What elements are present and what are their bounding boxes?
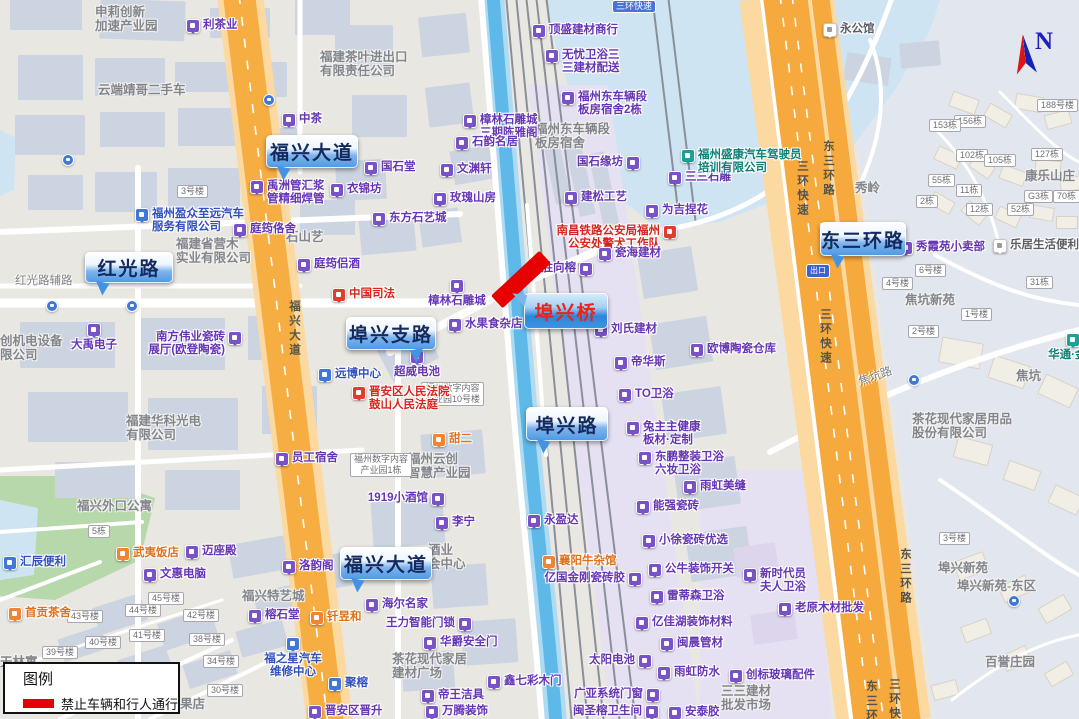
poi-marker[interactable]: 文渊轩 [440, 163, 454, 177]
label-line: 国石缘坊 [577, 156, 623, 169]
purple-poi-icon[interactable] [458, 617, 472, 631]
label-line: 安泰胶 [685, 706, 720, 719]
poi-marker[interactable]: 海尔名家 [365, 598, 379, 612]
purple-poi-icon[interactable] [657, 666, 671, 680]
label-line: 福兴特艺城 [242, 589, 305, 603]
poi-marker[interactable]: 为吉捏花 [645, 204, 659, 218]
label-line: 鼓山人民法庭 [369, 399, 450, 412]
poi-marker[interactable]: 1919小酒馆 [431, 492, 445, 506]
label-line: 李宁 [452, 516, 475, 529]
poi-marker[interactable]: 雨虹美缝 [683, 480, 697, 494]
label-line: 板材·定制 [643, 434, 701, 447]
poi-marker[interactable]: 玫瑰山房 [433, 192, 447, 206]
white-poi-icon[interactable] [823, 23, 837, 37]
poi-marker[interactable]: 万腾装饰 [425, 705, 439, 719]
bus-stop-icon[interactable] [62, 154, 74, 166]
label-line: 展厅(欧登陶瓷) [148, 344, 225, 357]
building-number-label: 44号楼 [125, 604, 161, 617]
poi-marker[interactable]: 帝华斯 [614, 356, 628, 370]
poi-label: 海尔名家 [382, 598, 428, 611]
poi-label: 兔主主健康板材·定制 [643, 421, 701, 447]
purple-poi-icon[interactable] [645, 705, 659, 719]
poi-label: 武夷饭店 [133, 547, 179, 560]
label-line: 55栋 [932, 175, 951, 186]
label-line: 甜二 [449, 433, 472, 446]
poi-marker[interactable]: 兔主主健康板材·定制 [626, 421, 640, 435]
poi-marker[interactable]: 建松工艺 [564, 191, 578, 205]
label-line: 太阳电池 [589, 654, 635, 667]
label-line: 东鹏整装卫浴 [655, 451, 724, 464]
poi-label: 首贡茶舍 [25, 607, 71, 620]
poi-marker[interactable]: 福州盛康汽车驾驶员培训有限公司 [681, 149, 695, 163]
road-callout-fuxing-avenue-north[interactable]: 福兴大道 [266, 135, 358, 168]
bus-stop-icon[interactable] [46, 300, 58, 312]
purple-poi-icon[interactable] [250, 180, 264, 194]
label-line: 11栋 [960, 185, 978, 196]
building-number-label: 3号楼 [177, 185, 208, 198]
poi-marker[interactable]: 汇辰便利 [3, 556, 17, 570]
label-line: 大禹电子 [71, 339, 117, 352]
poi-marker[interactable]: 福之星汽车维修中心 [286, 637, 300, 651]
purple-poi-icon[interactable] [778, 602, 792, 616]
label-line: 培训有限公司 [698, 162, 802, 175]
label-line: 永公馆 [840, 23, 875, 36]
poi-label: 襄阳牛杂馆 [559, 555, 617, 568]
building-number-label: 42号楼 [183, 609, 219, 622]
bus-stop-icon[interactable] [263, 94, 275, 106]
poi-marker[interactable]: 洛韵阁 [282, 560, 296, 574]
exit-badge[interactable]: 出口 [806, 264, 830, 278]
poi-label: 庭筠佫舍 [250, 223, 296, 236]
label-line: 海尔名家 [382, 598, 428, 611]
poi-marker[interactable]: 太阳电池 [638, 654, 652, 668]
poi-marker[interactable]: 亿佳湖装饰材料 [635, 616, 649, 630]
label-line: 三三建材 [721, 684, 771, 698]
poi-marker[interactable]: 华爵安全门 [423, 636, 437, 650]
poi-label: 公牛装饰开关 [665, 563, 734, 576]
label-line: 新时代员 [760, 568, 806, 581]
label-line: 建材广场 [392, 666, 467, 680]
purple-poi-icon[interactable] [660, 637, 674, 651]
building-number-label: 40号楼 [85, 636, 121, 649]
orange-poi-icon[interactable] [310, 611, 324, 625]
blue-poi-icon[interactable] [318, 368, 332, 382]
area-label: 创机电设备限公司 [0, 334, 63, 362]
area-label: 福建省营木实业有限公司 [176, 237, 251, 265]
purple-poi-icon[interactable] [186, 19, 200, 33]
road-callout-buxing-bridge[interactable]: 埠兴桥 [524, 293, 608, 329]
label-line: 焦坑 [1016, 369, 1041, 383]
label-line: 乐居生活便利店 [1010, 239, 1079, 252]
road-name-label: 东三环路 [863, 680, 879, 719]
road-callout-buxing-road[interactable]: 埠兴路 [526, 407, 608, 441]
purple-poi-icon[interactable] [143, 568, 157, 582]
poi-marker[interactable]: 王力智能门锁 [458, 617, 472, 631]
poi-marker[interactable]: 闽晨管材 [660, 637, 674, 651]
label-line: 汇辰便利 [20, 556, 66, 569]
poi-marker[interactable]: 雷蒂森卫浴 [650, 590, 664, 604]
purple-poi-icon[interactable] [598, 247, 612, 261]
label-line: 晋安区晋升 [325, 705, 383, 718]
purple-poi-icon[interactable] [642, 534, 656, 548]
purple-poi-icon[interactable] [487, 675, 501, 689]
poi-marker[interactable]: 老原木材批发 [778, 602, 792, 616]
purple-poi-icon[interactable] [423, 636, 437, 650]
poi-marker[interactable]: 迈座殿 [185, 545, 199, 559]
teal-poi-icon[interactable] [1066, 333, 1079, 347]
purple-poi-icon[interactable] [579, 262, 593, 276]
poi-marker[interactable]: 胜向榕 [579, 262, 593, 276]
poi-marker[interactable]: 能强瓷砖 [636, 500, 650, 514]
poi-marker[interactable]: 国石缘坊 [626, 156, 640, 170]
purple-poi-icon[interactable] [626, 421, 640, 435]
poi-marker[interactable]: 晋安区人民法院鼓山人民法庭 [352, 386, 366, 400]
poi-marker[interactable]: 钎昱和 [310, 611, 324, 625]
poi-marker[interactable]: 水果食杂店 [448, 318, 462, 332]
legend: 图例 禁止车辆和行人通行 [3, 662, 180, 714]
label-line: TO卫浴 [635, 388, 674, 401]
poi-marker[interactable]: 南昌铁路公安局福州公安处警犬工作队 [663, 225, 677, 239]
poi-marker[interactable]: 远博中心 [318, 368, 332, 382]
poi-marker[interactable]: 瓷海建材 [598, 247, 612, 261]
red-poi-icon[interactable] [332, 288, 346, 302]
poi-marker[interactable]: 创标玻璃配件 [729, 669, 743, 683]
poi-marker[interactable]: 永公馆 [823, 23, 837, 37]
building-number-label: 3号楼 [939, 532, 970, 545]
poi-marker[interactable]: 榕石堂 [248, 609, 262, 623]
label-line: 三建材配送 [562, 62, 620, 75]
label-line: 43号楼 [71, 611, 99, 622]
purple-poi-icon[interactable] [433, 192, 447, 206]
purple-poi-icon[interactable] [431, 492, 445, 506]
road-name-label: 东三环路 [820, 140, 836, 198]
building-number-label: 39号楼 [42, 646, 78, 659]
poi-marker[interactable]: 安泰胶 [668, 706, 682, 719]
purple-poi-icon[interactable] [743, 568, 757, 582]
poi-marker[interactable]: 欧博陶瓷仓库 [690, 343, 704, 357]
label-line: 福州盈众至远汽车 [152, 208, 244, 221]
poi-label: 晋安区晋升 [325, 705, 383, 718]
poi-marker[interactable]: 大禹电子 [87, 323, 101, 337]
area-label: 果店 [180, 697, 205, 711]
poi-label: 广亚系统门窗 [574, 688, 643, 701]
purple-poi-icon[interactable] [650, 590, 664, 604]
canal [493, 0, 556, 719]
poi-marker[interactable]: 福州盈众至远汽车服务有限公司 [135, 208, 149, 222]
purple-poi-icon[interactable] [618, 388, 632, 402]
purple-poi-icon[interactable] [372, 212, 386, 226]
poi-marker[interactable]: 三三石雕 [668, 171, 682, 185]
poi-marker[interactable]: 文惠电脑 [143, 568, 157, 582]
purple-poi-icon[interactable] [668, 171, 682, 185]
map-canvas[interactable]: N 图例 禁止车辆和行人通行 利茶业中茶禹洲管汇浆管精细焊管衣锦坊大禹电子南方伟… [0, 0, 1079, 719]
poi-label: 庭筠侣酒 [314, 258, 360, 271]
purple-poi-icon[interactable] [308, 705, 322, 719]
building-number-label: 38号楼 [189, 633, 225, 646]
purple-poi-icon[interactable] [87, 323, 101, 337]
poi-marker[interactable]: 樟林石雕城三期陈雅阁 [463, 114, 477, 128]
purple-poi-icon[interactable] [425, 705, 439, 719]
label-line: 中茶 [299, 113, 322, 126]
label-line: 东方石艺城 [389, 212, 447, 225]
orange-poi-icon[interactable] [8, 607, 22, 621]
label-line: 40号楼 [89, 637, 117, 648]
white-poi-icon[interactable] [993, 239, 1007, 253]
poi-marker[interactable]: 亿国金刚瓷砖胶 [628, 572, 642, 586]
area-label: 埠兴新苑 [938, 561, 988, 575]
purple-poi-icon[interactable] [365, 598, 379, 612]
poi-marker[interactable]: 乐居生活便利店 [993, 239, 1007, 253]
building-number-label: 11栋 [956, 184, 982, 197]
poi-marker[interactable]: 李宁 [435, 516, 449, 530]
poi-label: 老原木材批发 [795, 602, 864, 615]
poi-label: 迈座殿 [202, 545, 237, 558]
poi-marker[interactable]: 利茶业 [186, 19, 200, 33]
poi-label: 华爵安全门 [440, 636, 498, 649]
purple-poi-icon[interactable] [638, 654, 652, 668]
poi-marker[interactable]: 衣锦坊 [330, 183, 344, 197]
purple-poi-icon[interactable] [646, 688, 660, 702]
poi-marker[interactable]: 新时代员夫人卫浴 [743, 568, 757, 582]
area-label: 埠兴新苑-东区 [957, 579, 1036, 593]
poi-marker[interactable]: 闽圣榕卫生间 [645, 705, 659, 719]
poi-label: 闽晨管材 [677, 637, 723, 650]
purple-poi-icon[interactable] [421, 689, 435, 703]
poi-marker[interactable]: 樟林石雕城 [450, 279, 464, 293]
purple-poi-icon[interactable] [450, 279, 464, 293]
label-line: 亿佳湖装饰材料 [652, 616, 733, 629]
poi-label: 万腾装饰 [442, 705, 488, 718]
label-line: 钎昱和 [327, 611, 362, 624]
label-line: 埠兴新苑 [938, 561, 988, 575]
purple-poi-icon[interactable] [275, 452, 289, 466]
poi-label: 文惠电脑 [160, 568, 206, 581]
poi-marker[interactable]: TO卫浴 [618, 388, 632, 402]
purple-poi-icon[interactable] [228, 331, 242, 345]
purple-poi-icon[interactable] [297, 258, 311, 272]
purple-poi-icon[interactable] [527, 514, 541, 528]
poi-marker[interactable]: 小徐瓷砖优选 [642, 534, 656, 548]
label-line: 聚榕 [345, 677, 368, 690]
poi-label: 国石堂 [381, 161, 416, 174]
poi-label: 衣锦坊 [347, 183, 382, 196]
poi-label: 东鹏整装卫浴六妆卫浴 [655, 451, 724, 477]
poi-marker[interactable]: 武夷饭店 [116, 547, 130, 561]
building-number-label: 12栋 [966, 203, 993, 216]
poi-marker[interactable]: 首贡茶舍 [8, 607, 22, 621]
label-line: 福州盛康汽车驾驶员 [698, 149, 802, 162]
road-name-label: 三环快速 [886, 678, 902, 719]
purple-poi-icon[interactable] [635, 616, 649, 630]
purple-poi-icon[interactable] [638, 451, 652, 465]
area-label: 秀岭 [855, 181, 880, 195]
bus-stop-icon[interactable] [126, 300, 138, 312]
poi-marker[interactable]: 禹洲管汇浆管精细焊管 [250, 180, 264, 194]
orange-poi-icon[interactable] [432, 433, 446, 447]
label-line: 顶盛建材商行 [549, 24, 618, 37]
label-line: 188号楼 [1041, 100, 1074, 111]
purple-poi-icon[interactable] [532, 24, 546, 38]
label-line: 批发市场 [721, 698, 771, 712]
purple-poi-icon[interactable] [463, 114, 477, 128]
poi-marker[interactable]: 庭筠侣酒 [297, 258, 311, 272]
purple-poi-icon[interactable] [683, 480, 697, 494]
poi-marker[interactable]: 东鹏整装卫浴六妆卫浴 [638, 451, 652, 465]
purple-poi-icon[interactable] [636, 500, 650, 514]
label-line: 5栋 [92, 526, 106, 537]
poi-marker[interactable]: 永盈达 [527, 514, 541, 528]
poi-label: 福州盈众至远汽车服务有限公司 [152, 208, 244, 234]
poi-marker[interactable]: 石韵名居 [455, 136, 469, 150]
orange-poi-icon[interactable] [542, 555, 556, 569]
road-layer [0, 0, 1079, 719]
poi-marker[interactable]: 中茶 [282, 113, 296, 127]
building-number-label: 34号楼 [203, 655, 239, 668]
label-line: 禹洲管汇浆 [267, 180, 325, 193]
purple-poi-icon[interactable] [729, 669, 743, 683]
red-poi-icon[interactable] [663, 225, 677, 239]
callout-label: 埠兴路 [535, 411, 598, 438]
label-line: 武夷饭店 [133, 547, 179, 560]
poi-marker[interactable]: 聚榕 [328, 677, 342, 691]
poi-label: 顶盛建材商行 [549, 24, 618, 37]
label-line: 华通·金豪 [1048, 349, 1079, 362]
label-line: 华爵安全门 [440, 636, 498, 649]
label-line: 福州云创 [408, 452, 471, 466]
purple-poi-icon[interactable] [448, 318, 462, 332]
area-label: 福建茶叶进出口有限责任公司 [320, 50, 408, 78]
label-line: 智慧产业园 [408, 466, 471, 480]
purple-poi-icon[interactable] [628, 572, 642, 586]
purple-poi-icon[interactable] [626, 156, 640, 170]
label-line: 31栋 [1030, 277, 1049, 288]
label-line: 1919小酒馆 [368, 492, 428, 505]
callout-label: 红光路 [97, 254, 160, 281]
purple-poi-icon[interactable] [690, 343, 704, 357]
poi-marker[interactable]: 国石堂 [364, 161, 378, 175]
label-line: 6号楼 [919, 265, 942, 276]
purple-poi-icon[interactable] [645, 204, 659, 218]
poi-marker[interactable]: 员工宿舍 [275, 452, 289, 466]
purple-poi-icon[interactable] [282, 560, 296, 574]
purple-poi-icon[interactable] [455, 136, 469, 150]
poi-marker[interactable]: 华通·金豪 [1066, 333, 1079, 347]
poi-marker[interactable]: 广亚系统门窗 [646, 688, 660, 702]
blue-poi-icon[interactable] [328, 677, 342, 691]
road-callout-buxing-branch-road[interactable]: 埠兴支路 [346, 317, 436, 350]
orange-poi-icon[interactable] [116, 547, 130, 561]
poi-label: 榕石堂 [265, 609, 300, 622]
blue-poi-icon[interactable] [135, 208, 149, 222]
poi-label: 超威电池 [394, 366, 440, 379]
area-label: 茶花现代家居建材广场 [392, 652, 467, 680]
label-line: 福建华科光电 [126, 414, 201, 428]
area-label: 福州东车辆段板房宿舍 [535, 122, 610, 150]
label-line: 39号楼 [46, 647, 74, 658]
bus-stop-icon[interactable] [1008, 595, 1020, 607]
poi-marker[interactable]: 无忧卫浴三三建材配送 [545, 49, 559, 63]
purple-poi-icon[interactable] [330, 183, 344, 197]
purple-poi-icon[interactable] [282, 113, 296, 127]
building-number-label: 福州数字内容产业园1栋 [350, 453, 412, 477]
label-line: 庭筠佫舍 [250, 223, 296, 236]
poi-label: 禹洲管汇浆管精细焊管 [267, 180, 325, 206]
poi-label: 文渊轩 [457, 163, 492, 176]
purple-poi-icon[interactable] [561, 91, 575, 105]
poi-marker[interactable]: 东方石艺城 [372, 212, 386, 226]
poi-marker[interactable]: 晋安区晋升 [308, 705, 322, 719]
red-poi-icon[interactable] [352, 386, 366, 400]
purple-poi-icon[interactable] [648, 563, 662, 577]
label-line: 为吉捏花 [662, 204, 708, 217]
blue-poi-icon[interactable] [3, 556, 17, 570]
poi-label: 乐居生活便利店 [1010, 239, 1079, 252]
purple-poi-icon[interactable] [248, 609, 262, 623]
purple-poi-icon[interactable] [614, 356, 628, 370]
poi-label: 中茶 [299, 113, 322, 126]
label-line: 玫瑰山房 [450, 192, 496, 205]
poi-marker[interactable]: 南方伟业瓷砖展厅(欧登陶瓷) [228, 331, 242, 345]
area-label: 焦坑 [1016, 369, 1041, 383]
label-line: 茶花现代家居 [392, 652, 467, 666]
poi-marker[interactable]: 甜二 [432, 433, 446, 447]
bus-stop-icon[interactable] [908, 374, 920, 386]
poi-marker[interactable]: 福州东车辆段板房宿舍2栋 [561, 91, 575, 105]
poi-marker[interactable]: 中国司法 [332, 288, 346, 302]
blue-poi-icon[interactable] [286, 637, 300, 651]
poi-label: 甜二 [449, 433, 472, 446]
purple-poi-icon[interactable] [545, 49, 559, 63]
poi-label: 东方石艺城 [389, 212, 447, 225]
purple-poi-icon[interactable] [435, 516, 449, 530]
building-number-label: 70栋 [1053, 190, 1079, 203]
label-line: 果店 [180, 697, 205, 711]
label-line: 员工宿舍 [292, 452, 338, 465]
poi-marker[interactable]: 雨虹防水 [657, 666, 671, 680]
poi-label: 李宁 [452, 516, 475, 529]
poi-marker[interactable]: 帝王洁具 [421, 689, 435, 703]
purple-poi-icon[interactable] [564, 191, 578, 205]
teal-poi-icon[interactable] [681, 149, 695, 163]
purple-poi-icon[interactable] [440, 163, 454, 177]
purple-poi-icon[interactable] [185, 545, 199, 559]
label-line: 能强瓷砖 [653, 500, 699, 513]
road-callout-hongguang-road[interactable]: 红光路 [85, 252, 173, 283]
road-callout-east-third-ring-road[interactable]: 东三环路 [820, 222, 906, 256]
road-callout-fuxing-avenue-south[interactable]: 福兴大道 [340, 547, 432, 580]
poi-marker[interactable]: 襄阳牛杂馆 [542, 555, 556, 569]
building-number-label: 52栋 [1007, 203, 1034, 216]
label-line: 兔主主健康 [643, 421, 701, 434]
label-line: 1号楼 [965, 309, 988, 320]
label-line: 44号楼 [129, 605, 157, 616]
poi-marker[interactable]: 公牛装饰开关 [648, 563, 662, 577]
label-line: 105栋 [988, 155, 1012, 166]
building-number-label: 2号楼 [908, 325, 939, 338]
road-name-label: 东三环路 [897, 548, 913, 606]
poi-marker[interactable]: 顶盛建材商行 [532, 24, 546, 38]
legend-title: 图例 [23, 668, 178, 689]
label-line: 六妆卫浴 [655, 464, 724, 477]
poi-label: 1919小酒馆 [368, 492, 428, 505]
building-number-label: 55栋 [928, 174, 955, 187]
purple-poi-icon[interactable] [668, 706, 682, 719]
purple-poi-icon[interactable] [364, 161, 378, 175]
area-label: 云端靖哥二手车 [98, 83, 186, 97]
poi-marker[interactable]: 鑫七彩木门 [487, 675, 501, 689]
label-line: 榕石堂 [265, 609, 300, 622]
legend-item-label: 禁止车辆和行人通行 [61, 694, 178, 713]
